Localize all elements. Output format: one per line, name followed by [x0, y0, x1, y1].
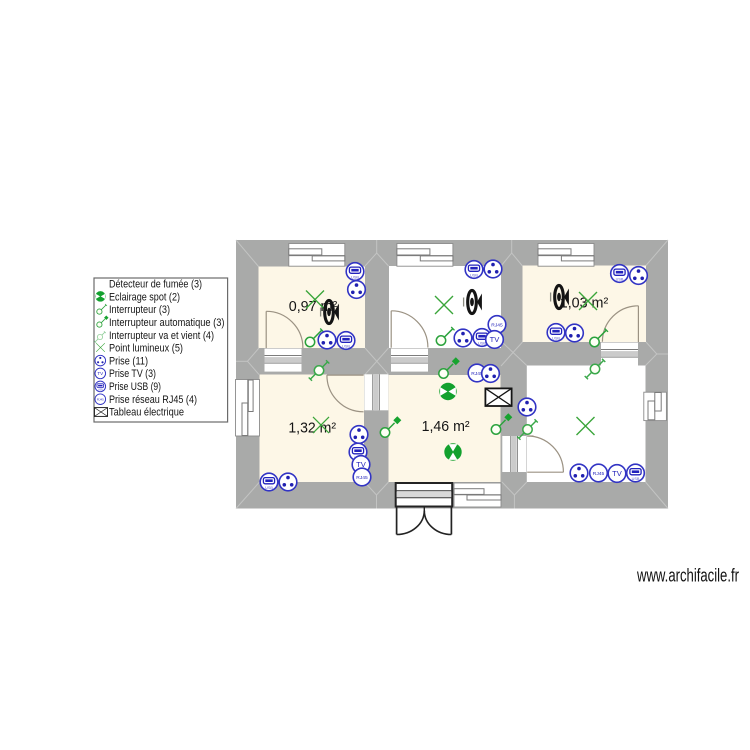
svg-text:Eclairage spot (2): Eclairage spot (2)	[109, 291, 180, 303]
svg-text:Prise USB (9): Prise USB (9)	[109, 381, 161, 393]
svg-text:1,46 m²: 1,46 m²	[422, 419, 470, 435]
svg-text:Détecteur de fumée (3): Détecteur de fumée (3)	[109, 279, 202, 291]
svg-text:Prise réseau RJ45 (4): Prise réseau RJ45 (4)	[109, 394, 197, 406]
svg-text:Prise TV (3): Prise TV (3)	[109, 368, 156, 380]
svg-text:Point lumineux (5): Point lumineux (5)	[109, 343, 183, 355]
svg-text:1,32 m²: 1,32 m²	[288, 421, 336, 437]
svg-text:Prise (11): Prise (11)	[109, 355, 148, 367]
svg-text:Interrupteur va et vient (4): Interrupteur va et vient (4)	[109, 330, 214, 342]
svg-text:Interrupteur (3): Interrupteur (3)	[109, 304, 170, 316]
svg-text:Interrupteur automatique (3): Interrupteur automatique (3)	[109, 317, 225, 329]
svg-text:www.archifacile.fr: www.archifacile.fr	[636, 566, 739, 586]
svg-text:Tableau électrique: Tableau électrique	[109, 407, 184, 419]
